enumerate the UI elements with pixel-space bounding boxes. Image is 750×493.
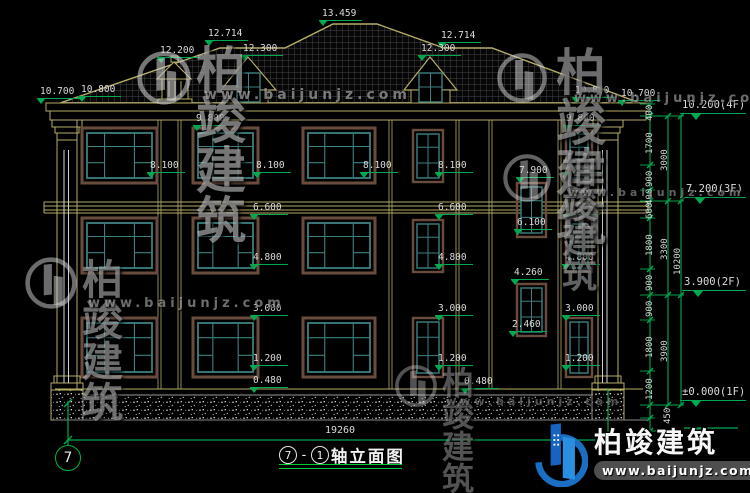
brand-website: www.baijunjz.com xyxy=(594,461,750,480)
elevation-line-drawing xyxy=(0,0,750,493)
brand-logo-icon xyxy=(532,421,588,487)
brand-logo: 柏竣建筑 www.baijunjz.com xyxy=(532,421,750,487)
axis-bubble-number: 7 xyxy=(64,450,72,466)
title-axis-bubble-7: 7 xyxy=(279,446,297,464)
overall-width-dim: 19260 xyxy=(300,426,380,436)
brand-text-block: 柏竣建筑 www.baijunjz.com xyxy=(594,429,750,480)
cad-elevation-canvas: 13.45912.71412.71412.20012.30012.30010.7… xyxy=(0,0,750,493)
brand-name: 柏竣建筑 xyxy=(594,429,750,457)
axis-bubble-7: 7 xyxy=(55,445,81,471)
title-axis-bubble-1: 1 xyxy=(311,446,329,464)
title-dash: - xyxy=(300,448,308,463)
title-underline xyxy=(279,464,402,469)
